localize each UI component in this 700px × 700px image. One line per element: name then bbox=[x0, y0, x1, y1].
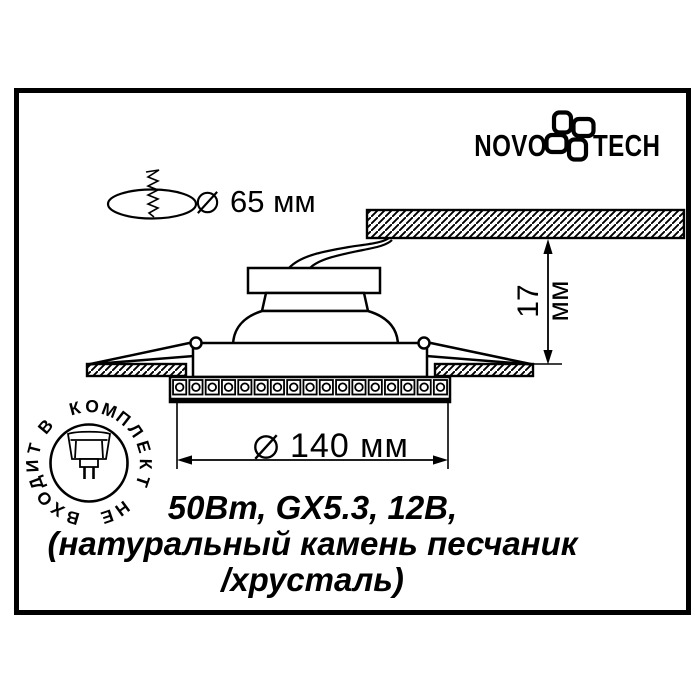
spec-line-material-2: /хрусталь) bbox=[20, 562, 605, 598]
overall-size-label: 140 мм bbox=[290, 427, 409, 466]
diameter-icon bbox=[194, 189, 221, 216]
ceiling-section-top bbox=[367, 210, 684, 238]
diameter-icon bbox=[251, 432, 281, 462]
logo-text-tech: TECH bbox=[593, 130, 660, 161]
spring-pivot-left-icon bbox=[191, 338, 202, 349]
mounting-spring-right bbox=[426, 342, 533, 365]
spring-pivot-right-icon bbox=[419, 338, 430, 349]
trim-plate bbox=[193, 343, 427, 377]
mounting-spring-left bbox=[88, 342, 194, 365]
depth-label: 17 мм bbox=[514, 265, 544, 337]
spec-text: 50Вт, GX5.3, 12В, (натуральный камень пе… bbox=[20, 490, 605, 598]
ceiling-section-right bbox=[435, 364, 533, 376]
cutout-size-note: 65 мм bbox=[194, 184, 316, 220]
housing-neck bbox=[262, 293, 368, 311]
screw-hole-icon bbox=[108, 170, 196, 219]
lamp-housing bbox=[248, 268, 380, 293]
ceiling-section-left bbox=[87, 364, 186, 376]
decor-band bbox=[170, 377, 450, 402]
logo-text-novo: NOVO bbox=[448, 130, 547, 161]
housing-dome bbox=[233, 311, 398, 346]
spec-line-material-1: (натуральный камень песчаник bbox=[20, 526, 605, 562]
spec-line-power: 50Вт, GX5.3, 12В, bbox=[20, 490, 605, 526]
logo-emblem-icon bbox=[547, 113, 594, 160]
mounting-wire-icon bbox=[289, 238, 392, 268]
cutout-size-label: 65 мм bbox=[230, 184, 316, 220]
overall-size-note: 140 мм bbox=[251, 427, 409, 466]
mr16-lamp-icon bbox=[68, 432, 110, 479]
